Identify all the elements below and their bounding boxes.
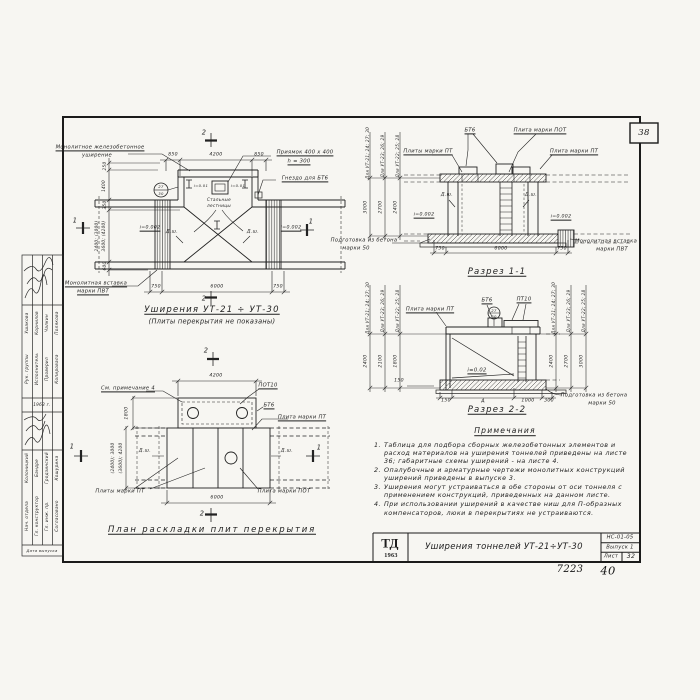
section-mark-2-bottom: 2 [200,511,205,518]
plan-bottom-title: План раскладки плит перекрытия [108,526,316,535]
rotated-dim-label: Для УТ-21; 24; 27; 30 [552,282,556,334]
callout-bt6: БТ6 [482,298,493,303]
stamp-name: Кошурина [55,456,59,481]
dim-1800: 1800 [126,406,131,419]
stamp-role: Копировала [55,354,59,384]
slope-small-right: i=0.01 [231,184,246,188]
title-block-issue: Выпуск 1 [606,545,633,550]
stamp-role: Нач. отдела [25,501,29,531]
dim-multi-1: (2400); 3000 [111,443,115,474]
node-ref-top: 27 [491,309,496,313]
note-item: 1. Таблица для подбора сборных железобет… [374,441,638,465]
logo-td: ТД [381,537,398,550]
rotated-dim-label: Для УТ-23; 26; 29 [567,290,571,333]
rotated-dim-value: 2400 [551,354,556,367]
callout-concrete-prep-2: марки 50 [342,246,370,251]
dim-multi-2: (3600); 4200 [119,443,123,474]
section-mark-1-left: 1 [73,218,78,225]
plan-top-subtitle: (Плиты перекрытия не показаны) [149,319,276,326]
dim-750-left: 750 [151,286,161,291]
dim-multi-2: 3600; (4200) [102,221,106,252]
note-number: 1. [374,441,382,465]
rotated-dim-label: Для УТ-22; 25; 28 [582,290,586,333]
note-text: Опалубочные и арматурные чертежи монолит… [384,466,638,482]
logo-year: 1963 [384,553,398,559]
rotated-dim-value: 2400 [365,354,370,367]
section-mark-2-bottom: 2 [202,296,207,303]
handwritten-number-right: 40 [600,565,615,577]
rotated-dim-value: 2400 [395,200,400,213]
callout-socket-bt6: Гнездо для БТ6 [282,176,329,181]
callout-bt6: БТ6 [465,128,476,133]
section-mark-1-right: 1 [317,445,322,452]
dim-600: 600 [103,262,107,271]
node-ref-bottom: 30 [158,192,163,196]
dim-6000: 6000 [210,286,223,291]
callout-pot-plate: Плита марки ПОТ [514,128,567,133]
joint-label-right: Д.ш. [247,231,259,236]
notes-list: 1. Таблица для подбора сборных железобет… [374,441,638,518]
callout-concrete-prep: Подготовка из бетона [331,238,398,243]
dim-6000: 6000 [210,497,223,502]
stamp-year: 1963 г. [33,403,51,407]
rotated-dim-label: Для УТ-23; 26; 29 [381,135,385,178]
note-text: Уширения могут устраиваться в обе сторон… [384,483,638,499]
callout-monolithic-insert-2: марки ПВТ [77,289,109,294]
stamp-role: Рук. группы [25,354,29,384]
callout-pt-plate: Плита марки ПТ [406,307,454,312]
dim-750-right: 750 [557,248,567,253]
stamp-role: Гл. инж. пр. [45,501,49,531]
title-block-sheet-number: 32 [627,554,635,560]
note-number: 3. [374,483,382,499]
rotated-dim-value: 3000 [365,200,370,213]
dim-150-side: 150 [394,380,404,385]
section-1-1-title: Разрез 1-1 [468,268,527,277]
dim-4200: 4200 [209,154,222,159]
dim-850-right: 850 [254,154,264,159]
stamp-name: Колоницкий [25,453,29,483]
stamp-role: Согласовано [55,500,59,531]
dim-bottom: 300 [544,400,554,405]
rotated-dim-value: 1800 [395,354,400,367]
drawing-sheet: 38 7223 40 Рук. группы Исполнитель Прове… [0,0,700,700]
joint-label-left: Д.ш. [441,194,453,199]
stamp-date-label: Дата выпуска [26,549,57,553]
stamp-name: Корнилов [35,311,39,335]
stamp-name: Полякова [55,311,59,334]
note-text: Таблица для подбора сборных железобетонн… [384,441,638,465]
title-block-sheet-label: Лист [604,554,618,559]
stamp-role: Гл. конструктор [35,496,39,536]
rotated-dim-label: Для УТ-23; 26; 29 [381,290,385,333]
title-block-code: НС-01-05 [607,535,634,540]
callout-concrete-prep: Подготовка из бетона [561,393,628,398]
plan-top-title: Уширения УТ-21 ÷ УТ-30 [144,306,279,315]
rotated-dim-label: Для УТ-22; 25; 28 [396,290,400,333]
rotated-dim-value: 2100 [380,354,385,367]
stamp-name: Чалкин [45,314,49,332]
node-ref-bottom: 30 [491,315,496,319]
callout-monolithic-insert: Монолитная вставка [65,281,127,286]
dim-bottom: 150 [441,400,451,405]
note-number: 4. [374,500,382,516]
callout-pt-plates-left: Плиты марки ПТ [403,149,452,154]
rotated-dim-value: 3000 [581,354,586,367]
stamp-name: Гродзинский [45,452,49,484]
node-ref-top: 27 [158,185,163,189]
dim-250: 250 [103,162,107,171]
joint-label-left: Д.ш. [139,450,151,455]
rotated-dim-value: 2700 [380,200,385,213]
section-mark-2-top: 2 [202,130,207,137]
callout-monolithic-widening-2: уширение [82,153,112,158]
dim-6000: 6000 [494,248,507,253]
dim-350: 350 [103,201,107,210]
callout-steel-ladders-2: лестницы [207,204,231,208]
callout-see-note-4: См. примечание 4 [101,386,155,391]
joint-label-right: Д.ш. [525,194,537,199]
callout-pot10: ПОТ10 [258,383,277,388]
callout-monolithic-widening: Монолитное железобетонное [56,145,145,150]
slope-label-left: i=0.002 [140,227,161,232]
notes-title: Примечания [474,427,535,435]
callout-concrete-prep-2: марки 50 [588,401,616,406]
slope-label-left: i=0.002 [414,214,435,219]
slope-label-right: i=0.002 [551,216,572,221]
note-number: 2. [374,466,382,482]
dim-750-left: 750 [435,248,445,253]
section-mark-1-left: 1 [70,444,75,451]
note-item: 4. При использовании уширений в качестве… [374,500,638,516]
rotated-dim-value: 2700 [566,354,571,367]
callout-pt10: ПТ10 [517,297,532,302]
handwritten-number-left: 7223 [557,565,584,575]
stamp-name: Бандре [35,459,39,477]
stamp-role: Исполнитель [35,353,39,385]
dim-4200: 4200 [209,375,222,380]
rotated-dim-label: Для УТ-22; 25; 28 [396,135,400,178]
slope-label: i=0.02 [467,368,486,373]
section-mark-2-top: 2 [204,348,209,355]
rotated-dim-label: Для УТ-21; 24; 27; 30 [366,127,370,179]
stamp-role: Проверил [45,357,49,381]
dim-multi-1: 2400; (3000) [95,221,99,252]
section-mark-1-right: 1 [309,219,314,226]
callout-pt-plate-right: Плита марки ПТ [278,415,326,420]
title-block-title: Уширения тоннелей УТ-21÷УТ-30 [425,543,583,552]
callout-monolithic-insert-2: марки ПВТ [596,247,628,252]
dim-1400: 1400 [102,180,106,192]
section-2-2-title: Разрез 2-2 [468,406,527,415]
drawing-linework [0,0,700,700]
dim-850-left: 850 [168,154,178,159]
callout-bt6: БТ6 [264,403,275,408]
dim-750-right: 750 [273,286,283,291]
callout-monolithic-insert: Монолитная вставка [575,239,637,244]
dim-bottom: 1000 [521,400,534,405]
joint-label-right: Д.ш. [281,450,293,455]
note-item: 2. Опалубочные и арматурные чертежи моно… [374,466,638,482]
callout-steel-ladders: Стальные [207,198,231,202]
rotated-dim-label: Для УТ-21; 24; 27; 30 [366,282,370,334]
joint-label-left: Д.ш. [166,231,178,236]
corner-sheet-number: 38 [638,129,649,138]
callout-pit: Приямок 400 x 400 [277,150,334,155]
stamp-name: Ушакова [25,312,29,333]
note-text: При использовании уширений в качестве ни… [384,500,638,516]
note-item: 3. Уширения могут устраиваться в обе сто… [374,483,638,499]
callout-pt-plate-right: Плита марки ПТ [550,149,598,154]
callout-pt-plates-left: Плиты марки ПТ [95,489,144,494]
callout-pot-plate: Плита марки ПОТ [258,489,311,494]
slope-label-right: i=0.002 [281,227,302,232]
callout-pit-height: h = 300 [288,159,311,164]
slope-small-left: i=0.01 [194,184,209,188]
